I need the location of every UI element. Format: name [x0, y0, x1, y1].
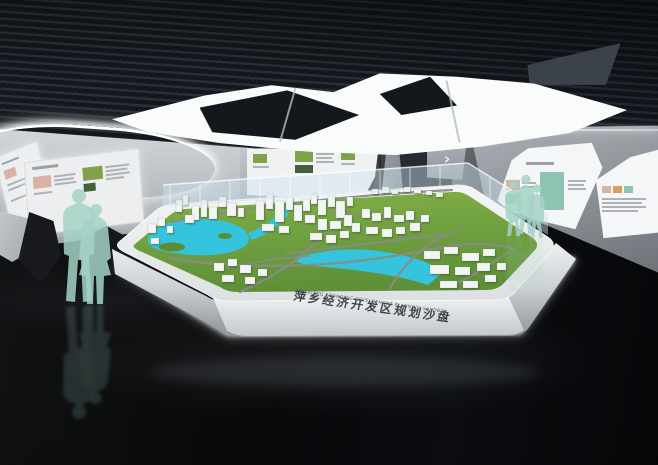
- visitor-silhouettes-left: [63, 189, 111, 304]
- visitor-reflection: [63, 304, 111, 419]
- floor-reflection: [150, 357, 540, 387]
- table-front-face: [213, 296, 524, 336]
- lake-island: [218, 233, 232, 239]
- exhibition-hall-render: ›: [0, 0, 658, 465]
- lake-island: [159, 243, 185, 252]
- sandbox-scene-svg: [0, 0, 658, 465]
